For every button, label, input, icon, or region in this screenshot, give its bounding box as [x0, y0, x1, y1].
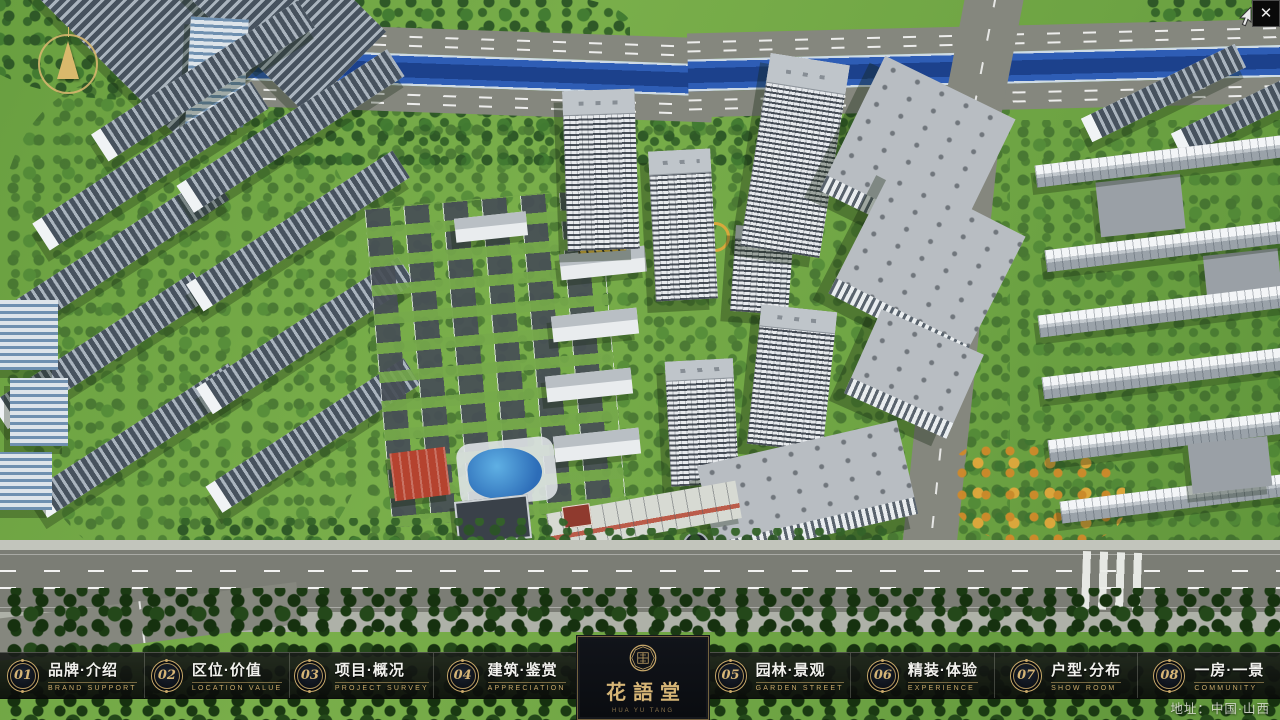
building: [0, 452, 52, 510]
sidewalk: [0, 540, 1280, 550]
nav-subtitle: LOCATION VALUE: [192, 682, 282, 692]
aerial-map-viewport[interactable]: [0, 0, 1280, 720]
nav-item-brand[interactable]: 01 品牌·介绍BRAND SUPPORT: [0, 653, 144, 698]
nav-subtitle: PROJECT SURVEY: [335, 682, 429, 692]
nav-title: 精装·体验: [908, 659, 978, 680]
building: [1188, 436, 1273, 494]
badge-05-icon: 05: [715, 660, 747, 692]
nav-subtitle: COMMUNITY: [1194, 682, 1264, 692]
badge-03-icon: 03: [294, 660, 326, 692]
nav-subtitle: APPRECIATION: [488, 682, 566, 692]
red-roof-building: [389, 447, 450, 501]
building: [0, 300, 58, 370]
nav-title: 区位·价值: [192, 659, 262, 680]
compass: [38, 34, 98, 94]
seal-emblem-icon: [628, 643, 658, 673]
badge-08-icon: 08: [1153, 660, 1185, 692]
nav-title: 建筑·鉴赏: [488, 659, 558, 680]
nav-subtitle: BRAND SUPPORT: [48, 682, 137, 692]
nav-title: 园林·景观: [756, 659, 826, 680]
badge-04-icon: 04: [447, 660, 479, 692]
tower: [747, 304, 837, 451]
compass-stem: [68, 27, 69, 37]
badge-06-icon: 06: [867, 660, 899, 692]
nav-title: 一房·一景: [1194, 659, 1264, 680]
nav-title: 项目·概况: [335, 659, 405, 680]
tower: [562, 89, 640, 251]
badge-07-icon: 07: [1010, 660, 1042, 692]
nav-group-right: 05 园林·景观GARDEN STREET 06 精装·体验EXPERIENCE…: [708, 653, 1280, 698]
address-text: 地址：中国·山西: [1170, 698, 1270, 717]
nav-title: 品牌·介绍: [48, 659, 118, 680]
nav-item-floorplan[interactable]: 07 户型·分布SHOW ROOM: [994, 653, 1137, 698]
mouse-cursor-icon: [1237, 7, 1252, 28]
close-button[interactable]: ✕: [1252, 0, 1280, 27]
presentation-app: ✕ 01 品牌·介绍BRAND SUPPORT 02 区位·价值LOCATION…: [0, 0, 1280, 720]
badge-01-icon: 01: [7, 660, 39, 692]
project-name: 花語堂: [599, 676, 687, 705]
project-name-latin: HUA YU TANG: [612, 708, 674, 714]
tower: [648, 148, 718, 301]
nav-item-architecture[interactable]: 04 建筑·鉴赏APPRECIATION: [433, 653, 578, 698]
nav-item-views[interactable]: 08 一房·一景COMMUNITY: [1137, 653, 1280, 698]
nav-group-left: 01 品牌·介绍BRAND SUPPORT 02 区位·价值LOCATION V…: [0, 653, 578, 698]
project-logo: 花語堂 HUA YU TANG: [577, 636, 709, 720]
badge-02-icon: 02: [151, 660, 183, 692]
nav-subtitle: GARDEN STREET: [756, 682, 844, 692]
north-arrow-icon: [57, 41, 79, 79]
building: [10, 378, 68, 446]
building: [1095, 174, 1185, 238]
nav-title: 户型·分布: [1051, 659, 1121, 680]
nav-item-interior[interactable]: 06 精装·体验EXPERIENCE: [850, 653, 993, 698]
nav-item-garden[interactable]: 05 园林·景观GARDEN STREET: [708, 653, 850, 698]
nav-subtitle: SHOW ROOM: [1051, 682, 1121, 692]
nav-item-project[interactable]: 03 项目·概况PROJECT SURVEY: [289, 653, 434, 698]
nav-subtitle: EXPERIENCE: [908, 682, 978, 692]
nav-item-location[interactable]: 02 区位·价值LOCATION VALUE: [144, 653, 289, 698]
